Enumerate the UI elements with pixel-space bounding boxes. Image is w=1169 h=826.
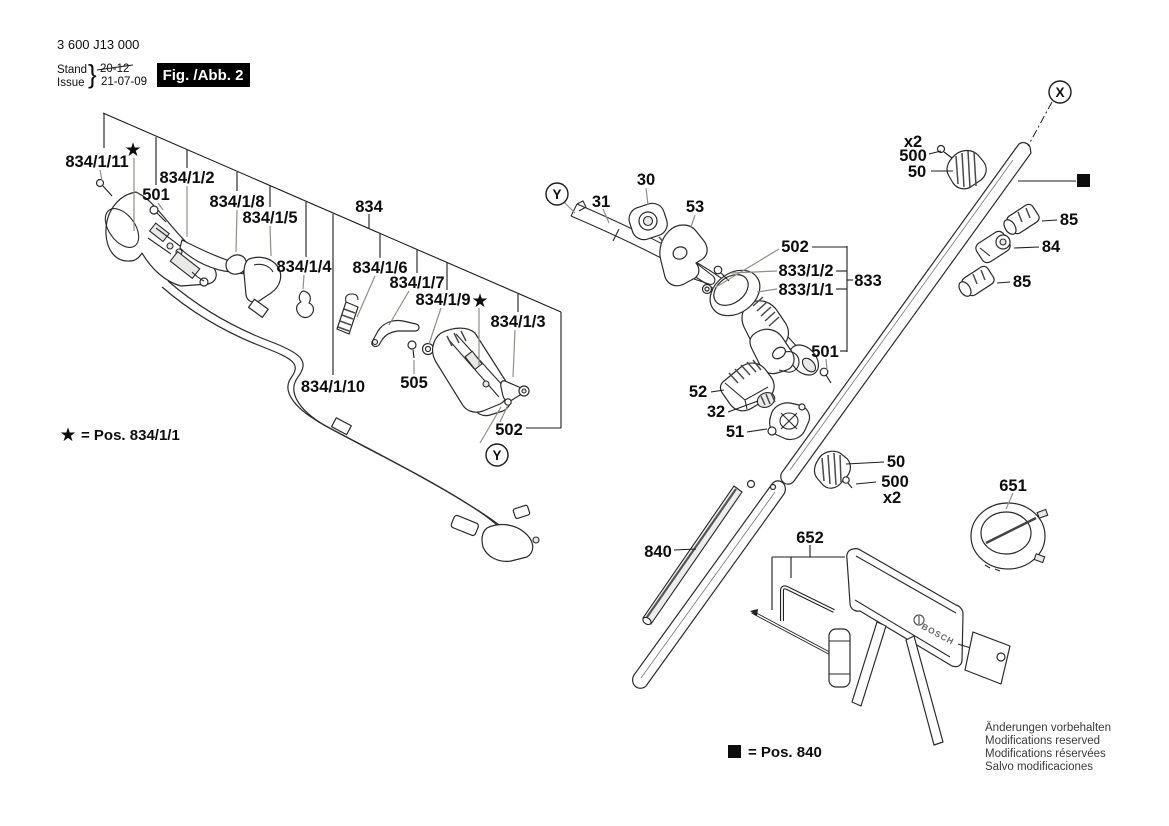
part-number: 3 600 J13 000 bbox=[57, 37, 139, 52]
callout-x2-lower: x2 bbox=[883, 489, 901, 507]
callout-834-1-9: 834/1/9 bbox=[415, 291, 470, 309]
callout-84: 84 bbox=[1042, 238, 1061, 256]
callout-85-upper: 85 bbox=[1060, 211, 1078, 229]
callout-833-1-2: 833/1/2 bbox=[778, 262, 833, 280]
callout-85-lower: 85 bbox=[1013, 273, 1031, 291]
callout-501-mid: 501 bbox=[811, 343, 839, 361]
stand-label: Stand bbox=[57, 64, 87, 76]
spring-834-1-6 bbox=[337, 294, 358, 334]
star-marker: ★ bbox=[471, 291, 488, 312]
callout-505: 505 bbox=[400, 374, 428, 392]
callout-32: 32 bbox=[707, 403, 725, 421]
callout-labels: 834/1/11 ★ 501 834/1/2 834/1/8 834/1/5 8… bbox=[65, 133, 1090, 561]
legend-square: = Pos. 840 bbox=[728, 744, 822, 761]
screw-505 bbox=[408, 341, 416, 358]
callout-834-1-2: 834/1/2 bbox=[159, 169, 214, 187]
callout-30: 30 bbox=[637, 171, 655, 189]
callout-52: 52 bbox=[689, 383, 707, 401]
callout-53: 53 bbox=[686, 198, 704, 216]
clamp-53 bbox=[660, 225, 715, 286]
modification-notes: Änderungen vorbehalten Modifications res… bbox=[985, 722, 1111, 773]
legend-square-symbol bbox=[728, 745, 741, 758]
trigger-834-1-5 bbox=[244, 257, 281, 302]
spool-cover-651 bbox=[971, 503, 1048, 571]
left-assembly-drawing bbox=[97, 180, 540, 562]
callout-834-1-11: 834/1/11 bbox=[65, 153, 128, 171]
star-marker: ★ bbox=[124, 140, 141, 161]
note-en: Modifications reserved bbox=[985, 735, 1100, 747]
rod-tool bbox=[750, 609, 831, 654]
brace: } bbox=[88, 59, 97, 89]
callout-651: 651 bbox=[999, 477, 1027, 495]
callout-502-mid: 502 bbox=[781, 238, 809, 256]
callout-833: 833 bbox=[854, 272, 882, 290]
square-marker bbox=[1077, 174, 1090, 187]
sleeve-85-upper bbox=[1001, 202, 1041, 236]
screw-500-lower bbox=[843, 477, 852, 488]
screw-834-1-11 bbox=[97, 180, 113, 197]
marker-y: Y bbox=[492, 448, 501, 463]
hex-key bbox=[782, 587, 834, 621]
legend-star: ★ = Pos. 834/1/1 bbox=[59, 425, 179, 446]
shaft-upper bbox=[781, 143, 1031, 485]
note-de: Änderungen vorbehalten bbox=[985, 722, 1111, 734]
issue-label: Issue bbox=[57, 77, 85, 89]
callout-834-1-5: 834/1/5 bbox=[242, 209, 297, 227]
callout-31: 31 bbox=[592, 193, 610, 211]
issue-value: 21-07-09 bbox=[101, 76, 147, 88]
page: BOSCH bbox=[0, 0, 1169, 826]
callout-833-1-1: 833/1/1 bbox=[778, 281, 833, 299]
callout-501-left: 501 bbox=[142, 186, 170, 204]
screw-501-mid bbox=[820, 368, 831, 383]
callout-652: 652 bbox=[796, 529, 824, 547]
base-51 bbox=[768, 403, 810, 440]
handle-shell-834-1-9 bbox=[433, 328, 509, 412]
callout-834: 834 bbox=[355, 198, 383, 216]
sleeve-85-lower bbox=[956, 264, 996, 298]
boom-assembly-drawing bbox=[571, 143, 1031, 689]
clip-84 bbox=[974, 229, 1013, 265]
guard-shield: BOSCH bbox=[847, 549, 963, 667]
clip-834-1-4 bbox=[297, 291, 314, 317]
accessories-drawing: BOSCH bbox=[750, 503, 1048, 745]
callout-50-upper: 50 bbox=[908, 163, 926, 181]
callout-834-1-4: 834/1/4 bbox=[276, 258, 332, 276]
cable-end-connector bbox=[450, 505, 539, 562]
screw-502-left bbox=[505, 399, 511, 405]
x-reference-line bbox=[1028, 102, 1052, 146]
callout-834-1-7: 834/1/7 bbox=[389, 274, 444, 292]
inline-connector bbox=[332, 418, 352, 435]
t-handle-tool bbox=[829, 629, 850, 687]
callout-834-1-3: 834/1/3 bbox=[490, 313, 545, 331]
note-fr: Modifications réservées bbox=[985, 748, 1106, 760]
legend-star-symbol: ★ bbox=[59, 425, 76, 446]
figure-label: Fig. /Abb. 2 bbox=[163, 67, 244, 84]
washer bbox=[423, 344, 434, 355]
lever-834-1-3 bbox=[501, 381, 529, 401]
title-block: 3 600 J13 000 Stand Issue } 20-12 21-07-… bbox=[57, 37, 250, 89]
parts-diagram-figure: BOSCH bbox=[0, 0, 1169, 826]
note-es: Salvo modificaciones bbox=[985, 761, 1093, 773]
callout-51: 51 bbox=[726, 423, 744, 441]
legend-square-text: = Pos. 840 bbox=[748, 744, 822, 761]
callout-840: 840 bbox=[644, 543, 672, 561]
marker-x: X bbox=[1055, 85, 1064, 100]
callout-834-1-10: 834/1/10 bbox=[301, 378, 365, 396]
shaft-lower bbox=[633, 481, 786, 688]
legend-star-text: = Pos. 834/1/1 bbox=[81, 427, 180, 444]
hang-tag bbox=[958, 632, 1010, 684]
guard-leg bbox=[852, 622, 886, 706]
marker-y: Y bbox=[552, 187, 561, 202]
callout-502-left: 502 bbox=[495, 421, 523, 439]
nut-502 bbox=[703, 285, 712, 294]
callout-lines bbox=[100, 102, 1076, 610]
callout-50-lower: 50 bbox=[887, 453, 905, 471]
clamp-50-upper bbox=[947, 151, 986, 189]
lock-button bbox=[748, 481, 755, 488]
